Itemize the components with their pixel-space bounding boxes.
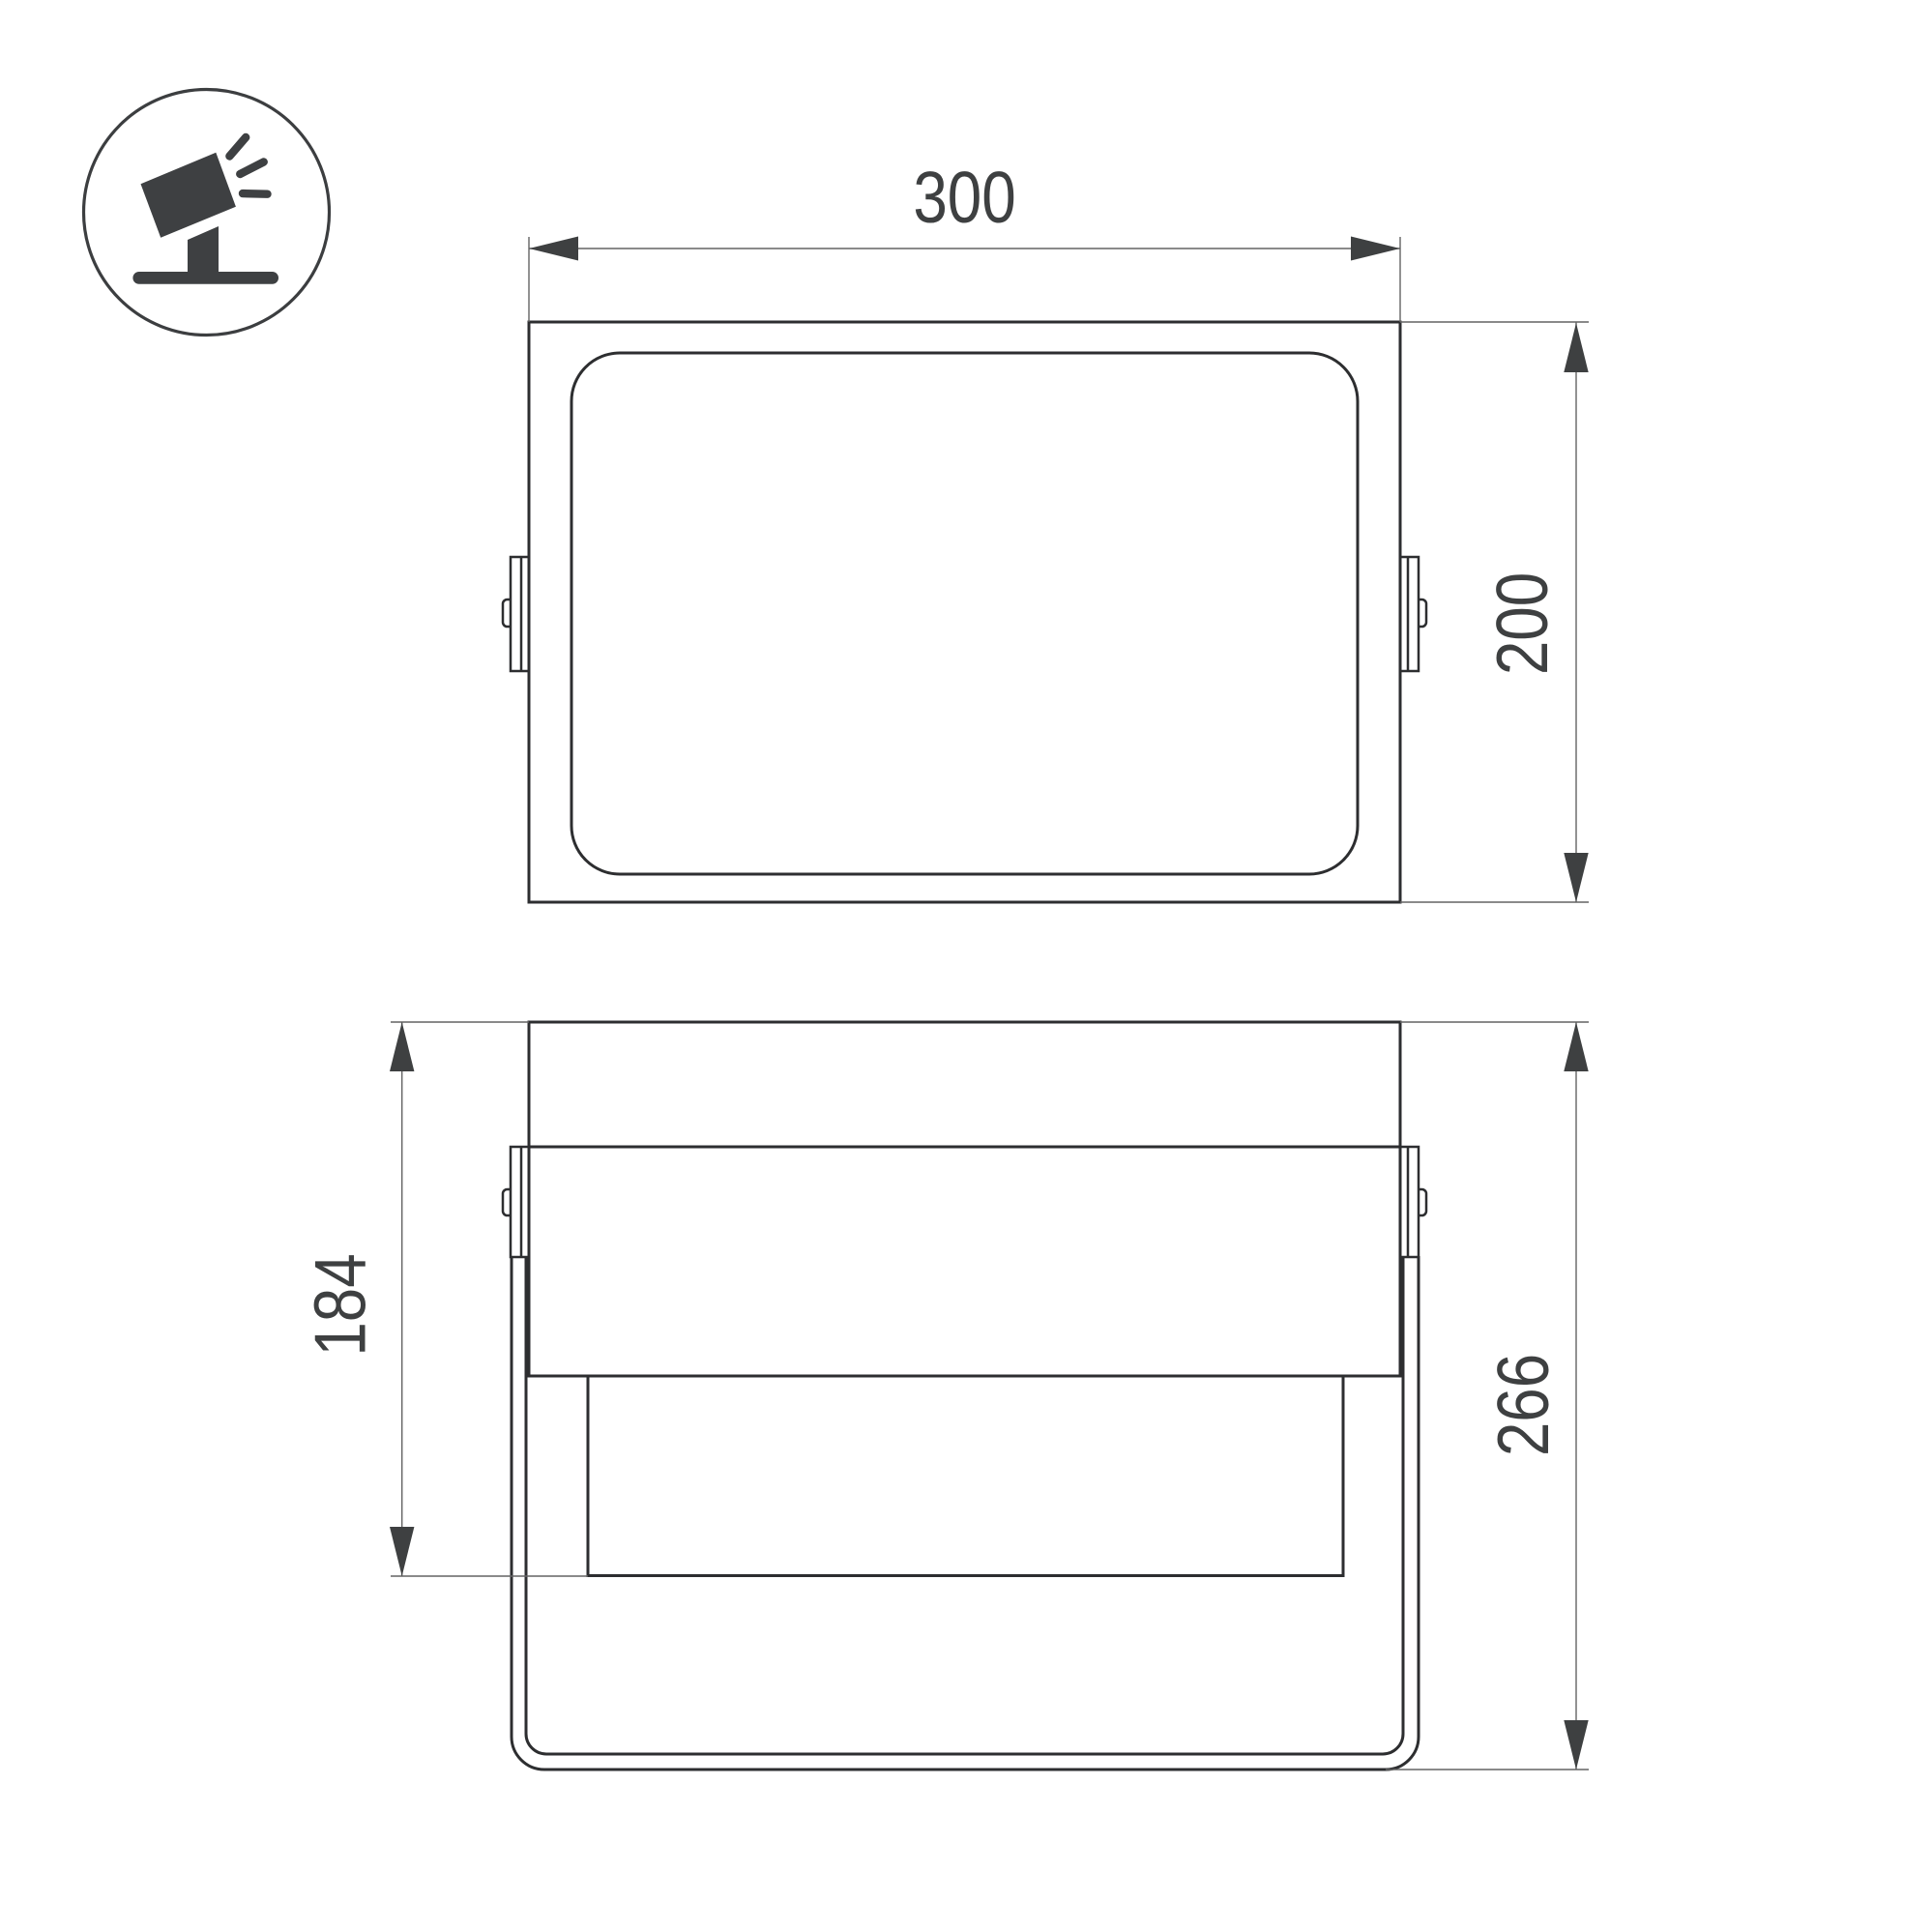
svg-text:184: 184 [300, 1253, 381, 1356]
svg-text:200: 200 [1481, 572, 1563, 675]
svg-text:300: 300 [913, 157, 1015, 238]
svg-text:266: 266 [1482, 1354, 1564, 1456]
